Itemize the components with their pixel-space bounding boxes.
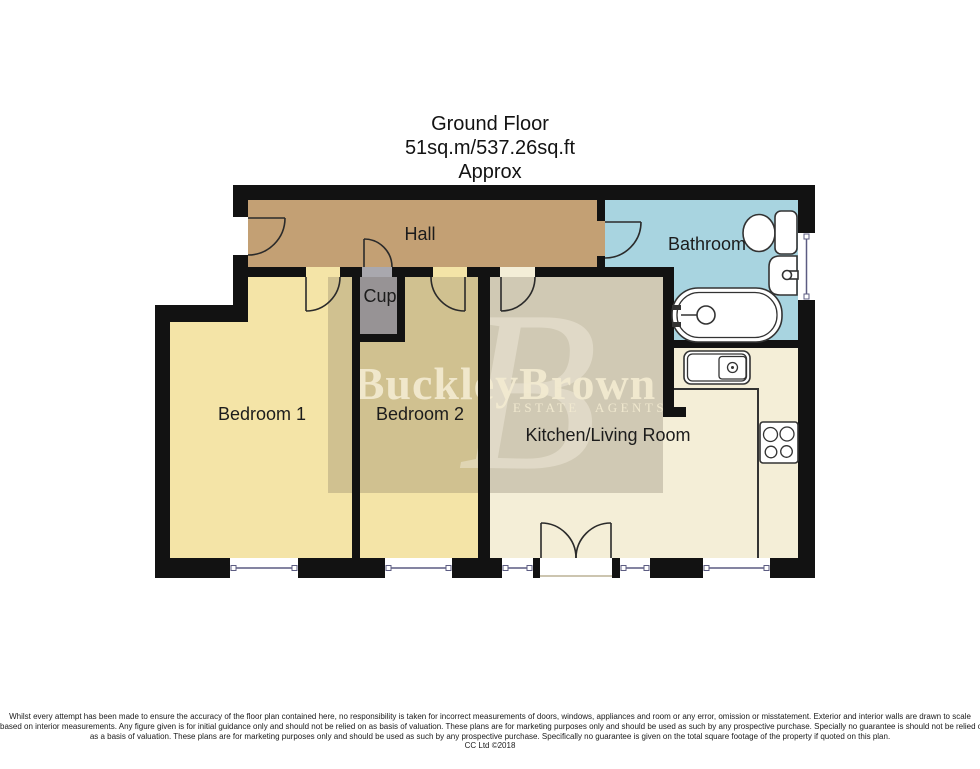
disclaimer: Whilst every attempt has been made to en… [0,712,980,751]
wall-hall-seg5 [535,267,674,277]
hall-label: Hall [404,224,435,244]
bathroom-sink [769,256,798,295]
window-bedroom1 [230,559,298,576]
disclaimer-line-2: based on interior measurements. Any figu… [0,722,980,732]
disclaimer-line-3: as a basis of valuation. These plans are… [0,732,980,742]
title-area: 51sq.m/537.26sq.ft [0,136,980,160]
wall-hall-bathroom-lower [597,256,605,267]
window-kitchen-right [703,559,770,576]
title-floor-name: Ground Floor [0,112,980,136]
wall-cupboard-right [397,267,405,342]
wall-hall-seg1 [248,267,306,277]
wall-bottom-seg4 [533,558,540,578]
hob [760,422,798,463]
wall-cupboard-bottom [352,334,405,342]
bedroom2-label: Bedroom 2 [376,404,464,424]
disclaimer-line-1: Whilst every attempt has been made to en… [0,712,980,722]
logo-tagline-text: ESTATE AGENTS [513,400,667,415]
window-bedroom2 [385,559,452,576]
wall-bottom-seg2 [298,558,385,578]
cupboard-label: Cup [363,286,396,306]
wall-bedroom2-kitchen-divider [478,267,490,558]
wall-left-lower [155,305,170,578]
kitchen-living-label: Kitchen/Living Room [525,425,690,445]
wall-bedroom-divider [352,267,360,558]
wall-left-above-door [233,185,248,217]
wall-bottom-seg6 [650,558,703,578]
window-bathroom-side [798,233,815,300]
wall-right-upper [798,185,815,233]
window-kitchen-small [502,559,533,576]
wall-right-lower [798,300,815,578]
floorplan-drawing: B BuckleyBrown ESTATE AGENTS [150,180,820,580]
kitchen-sink [684,351,750,384]
wall-kitchen-partial-foot [663,407,686,417]
window-kitchen-mid [620,559,650,576]
wall-hall-bathroom-upper [597,200,605,221]
bedroom1-label: Bedroom 1 [218,404,306,424]
wall-top [233,185,815,200]
bathroom-label: Bathroom [668,234,746,254]
wall-bottom-seg7 [770,558,815,578]
plan-title: Ground Floor 51sq.m/537.26sq.ft Approx [0,112,980,184]
disclaimer-copyright: CC Ltd ©2018 [0,741,980,751]
wall-bottom-seg3 [452,558,502,578]
wall-bottom-seg5 [612,558,620,578]
bathtub [672,288,782,342]
floorplan-page: Ground Floor 51sq.m/537.26sq.ft Approx B… [0,0,980,769]
